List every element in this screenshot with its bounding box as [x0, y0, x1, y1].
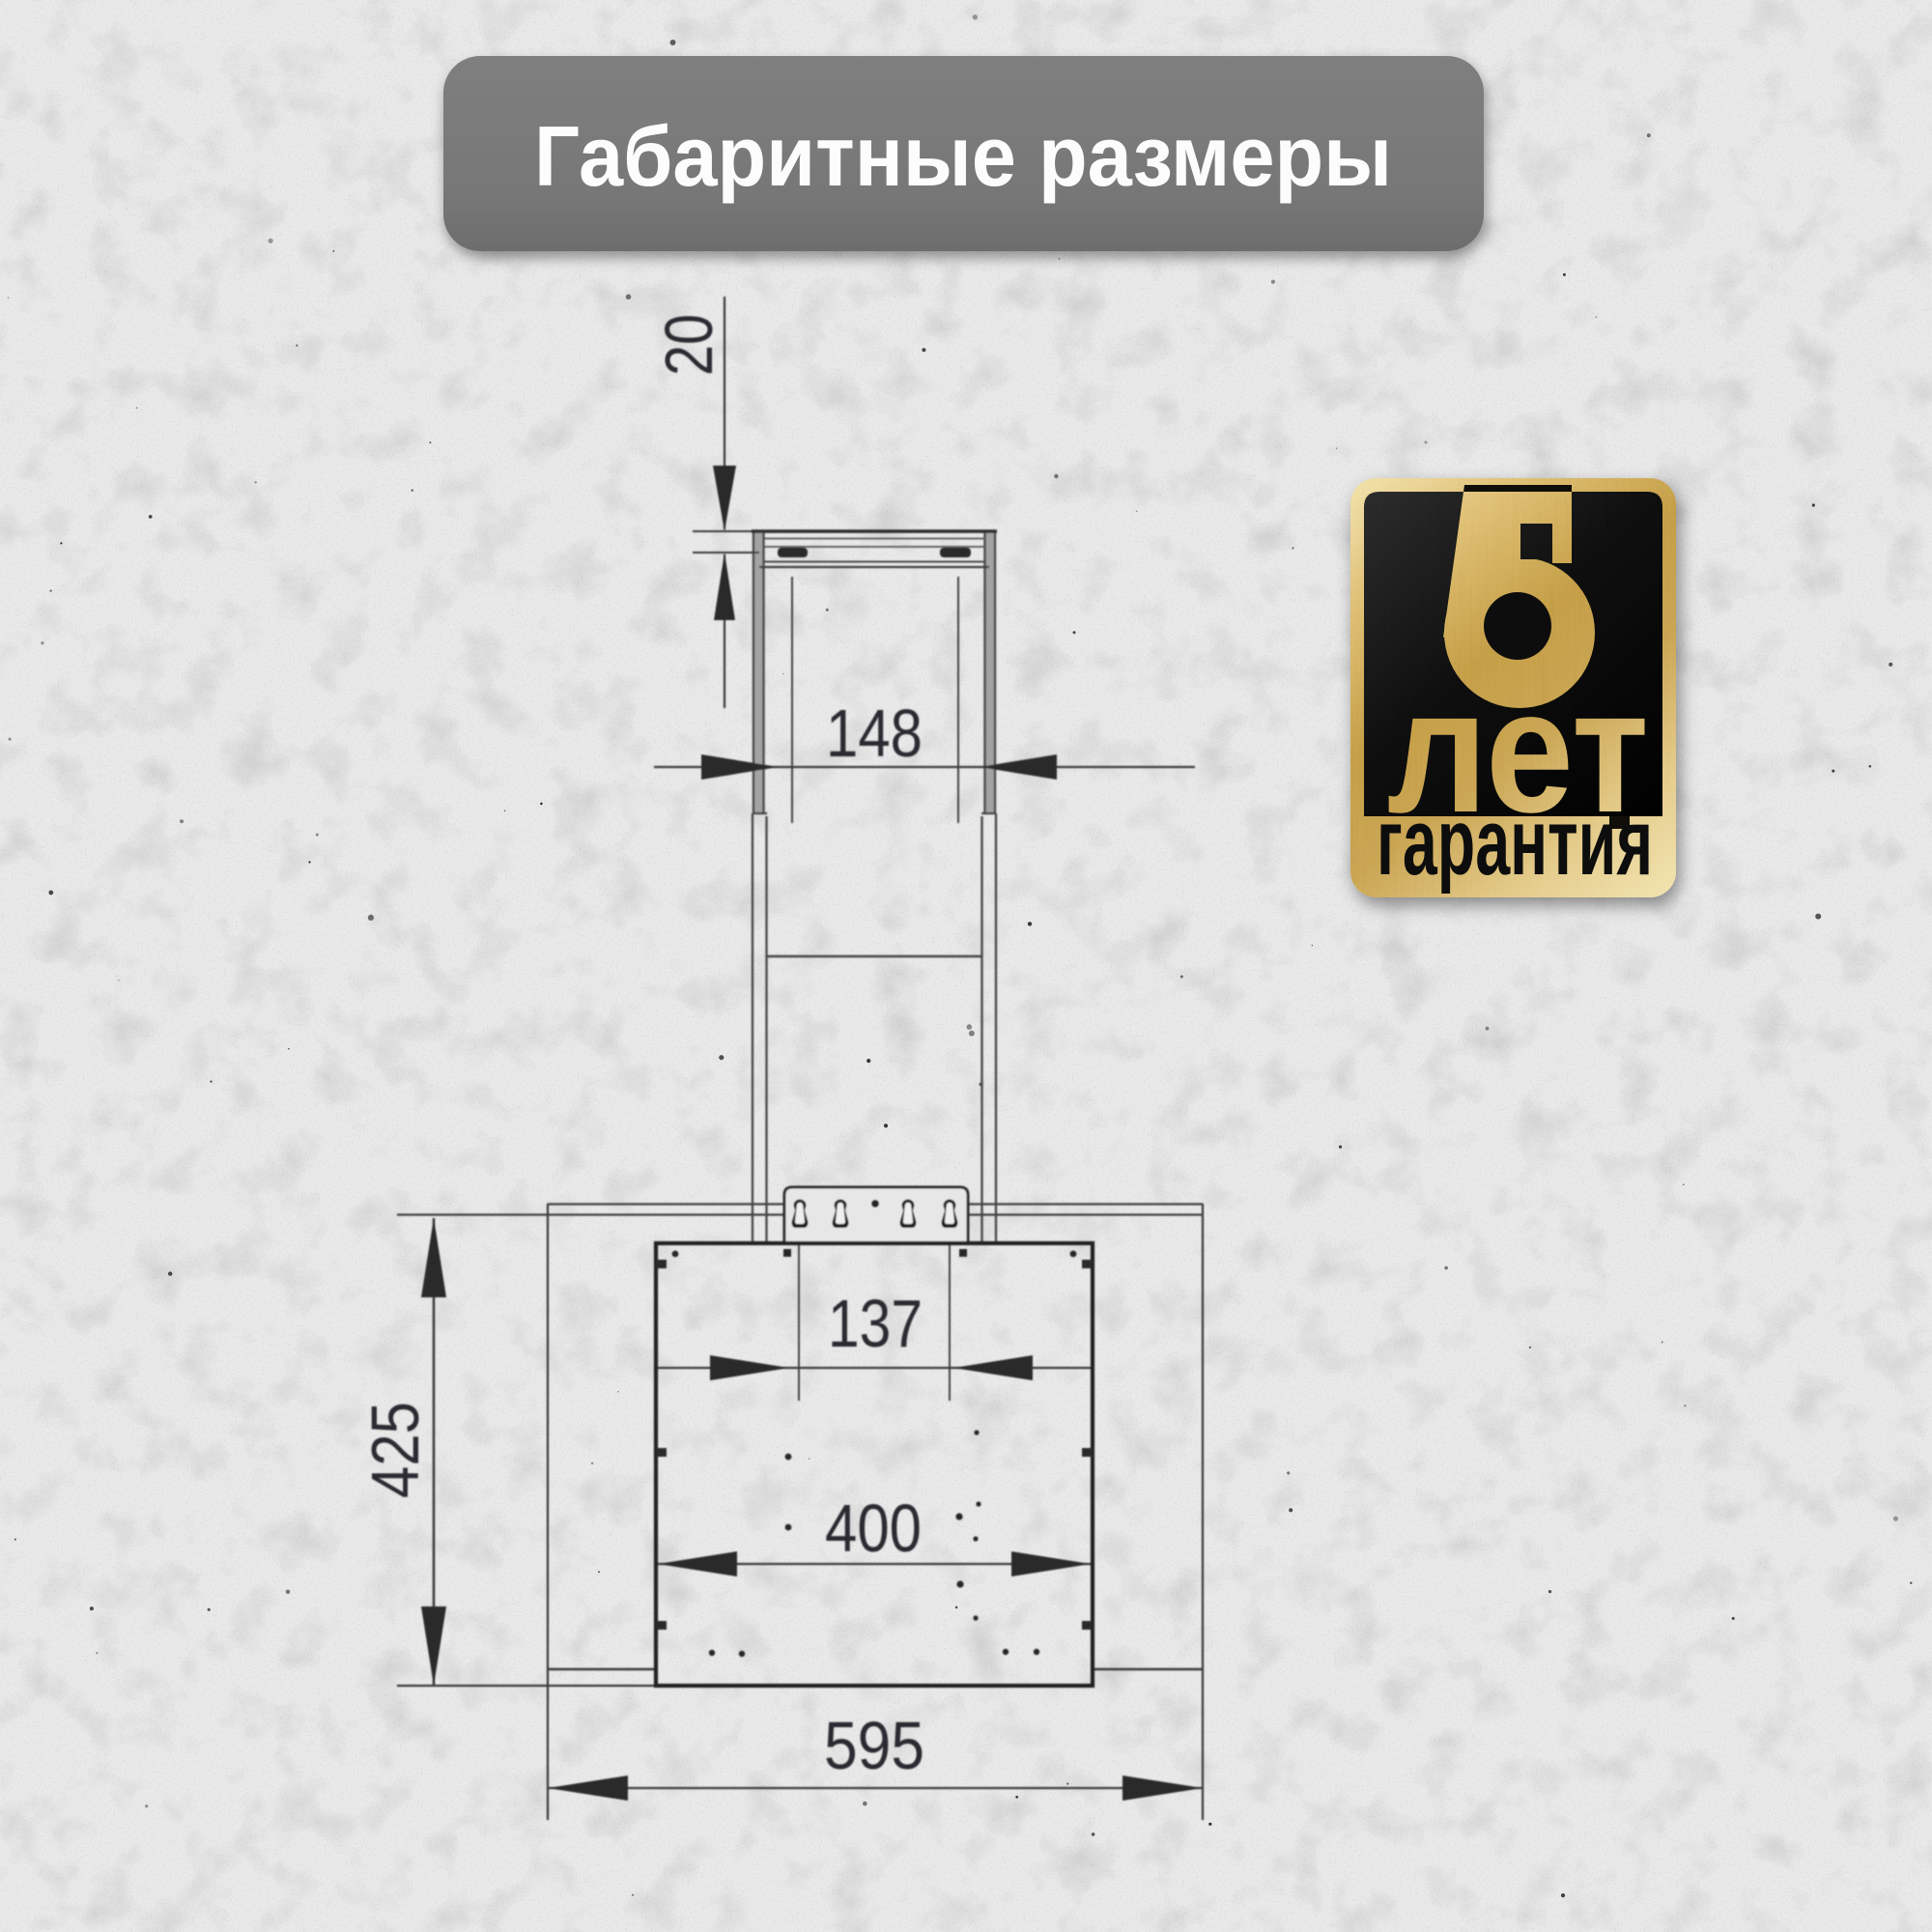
svg-text:595: 595 — [824, 1708, 924, 1783]
svg-text:20: 20 — [651, 314, 726, 376]
svg-text:400: 400 — [825, 1491, 922, 1566]
svg-text:148: 148 — [826, 696, 923, 771]
svg-text:Габаритные размеры: Габаритные размеры — [534, 108, 1392, 204]
svg-text:137: 137 — [828, 1286, 923, 1361]
svg-text:425: 425 — [357, 1402, 433, 1498]
